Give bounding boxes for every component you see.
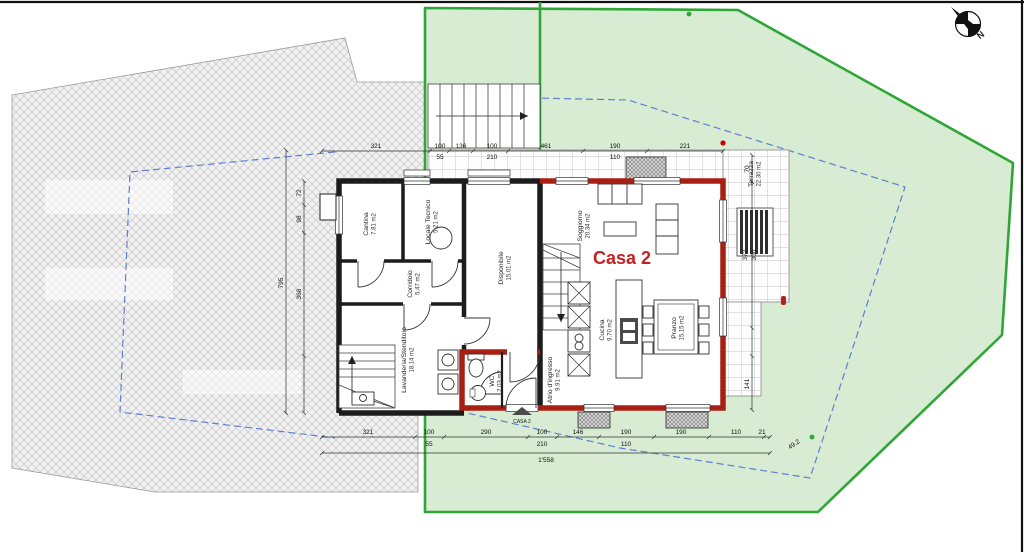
corner-marker-red [720,140,725,145]
north-arrow: N [951,7,986,41]
dim-text: 110 [621,441,632,448]
dim-text: 321 [371,143,382,150]
dim-text: 210 [537,441,548,448]
dim-text: 21 [758,429,766,436]
dim-text: 141 [744,378,751,389]
dim-text: 70 [744,165,751,173]
boundary-point-marker [687,12,692,17]
casa2-title: Casa 2 [593,248,651,268]
dim-text: 100 [487,143,498,150]
dim-text: 372 [742,249,749,260]
pergola-slats [737,208,773,256]
dim-text: 98 [296,215,303,223]
dim-text: 368 [296,288,303,299]
dim-text: 321 [363,429,374,436]
exterior-stair [428,84,540,148]
dim-text: 72 [296,189,303,197]
entrance-label: CASA 2 [513,419,531,425]
window-box [320,194,336,220]
dim-text: 55 [436,154,444,161]
dim-text: 110 [731,429,742,436]
dim-text: 100 [435,143,446,150]
dim-text: 795 [278,277,285,288]
dim-text: 190 [610,143,621,150]
dim-text: 146 [573,429,584,436]
dim-text: 55 [425,441,433,448]
dim-text: 210 [487,154,498,161]
dim-text: 190 [621,429,632,436]
lot-marker-red [781,296,786,305]
dim-text: 100 [537,429,548,436]
boundary-point-marker [810,435,815,440]
north-letter: N [975,29,986,41]
dim-total-text: 1'558 [538,457,554,464]
dim-text: 136 [456,143,467,150]
dim-text: 290 [481,429,492,436]
dim-text: 190 [676,429,687,436]
dim-text: 300 [751,249,758,260]
site-plan-canvas: Cantina7.81 m2 Locale Tecnico5.21 m2 Cor… [0,0,1024,552]
dim-text: 461 [541,143,552,150]
floor-plan-drawing: Cantina7.81 m2 Locale Tecnico5.21 m2 Cor… [0,0,1024,552]
dim-text: 100 [424,429,435,436]
light-well-grate [626,157,666,179]
dim-text: 221 [680,143,691,150]
dim-text: 110 [610,154,621,161]
